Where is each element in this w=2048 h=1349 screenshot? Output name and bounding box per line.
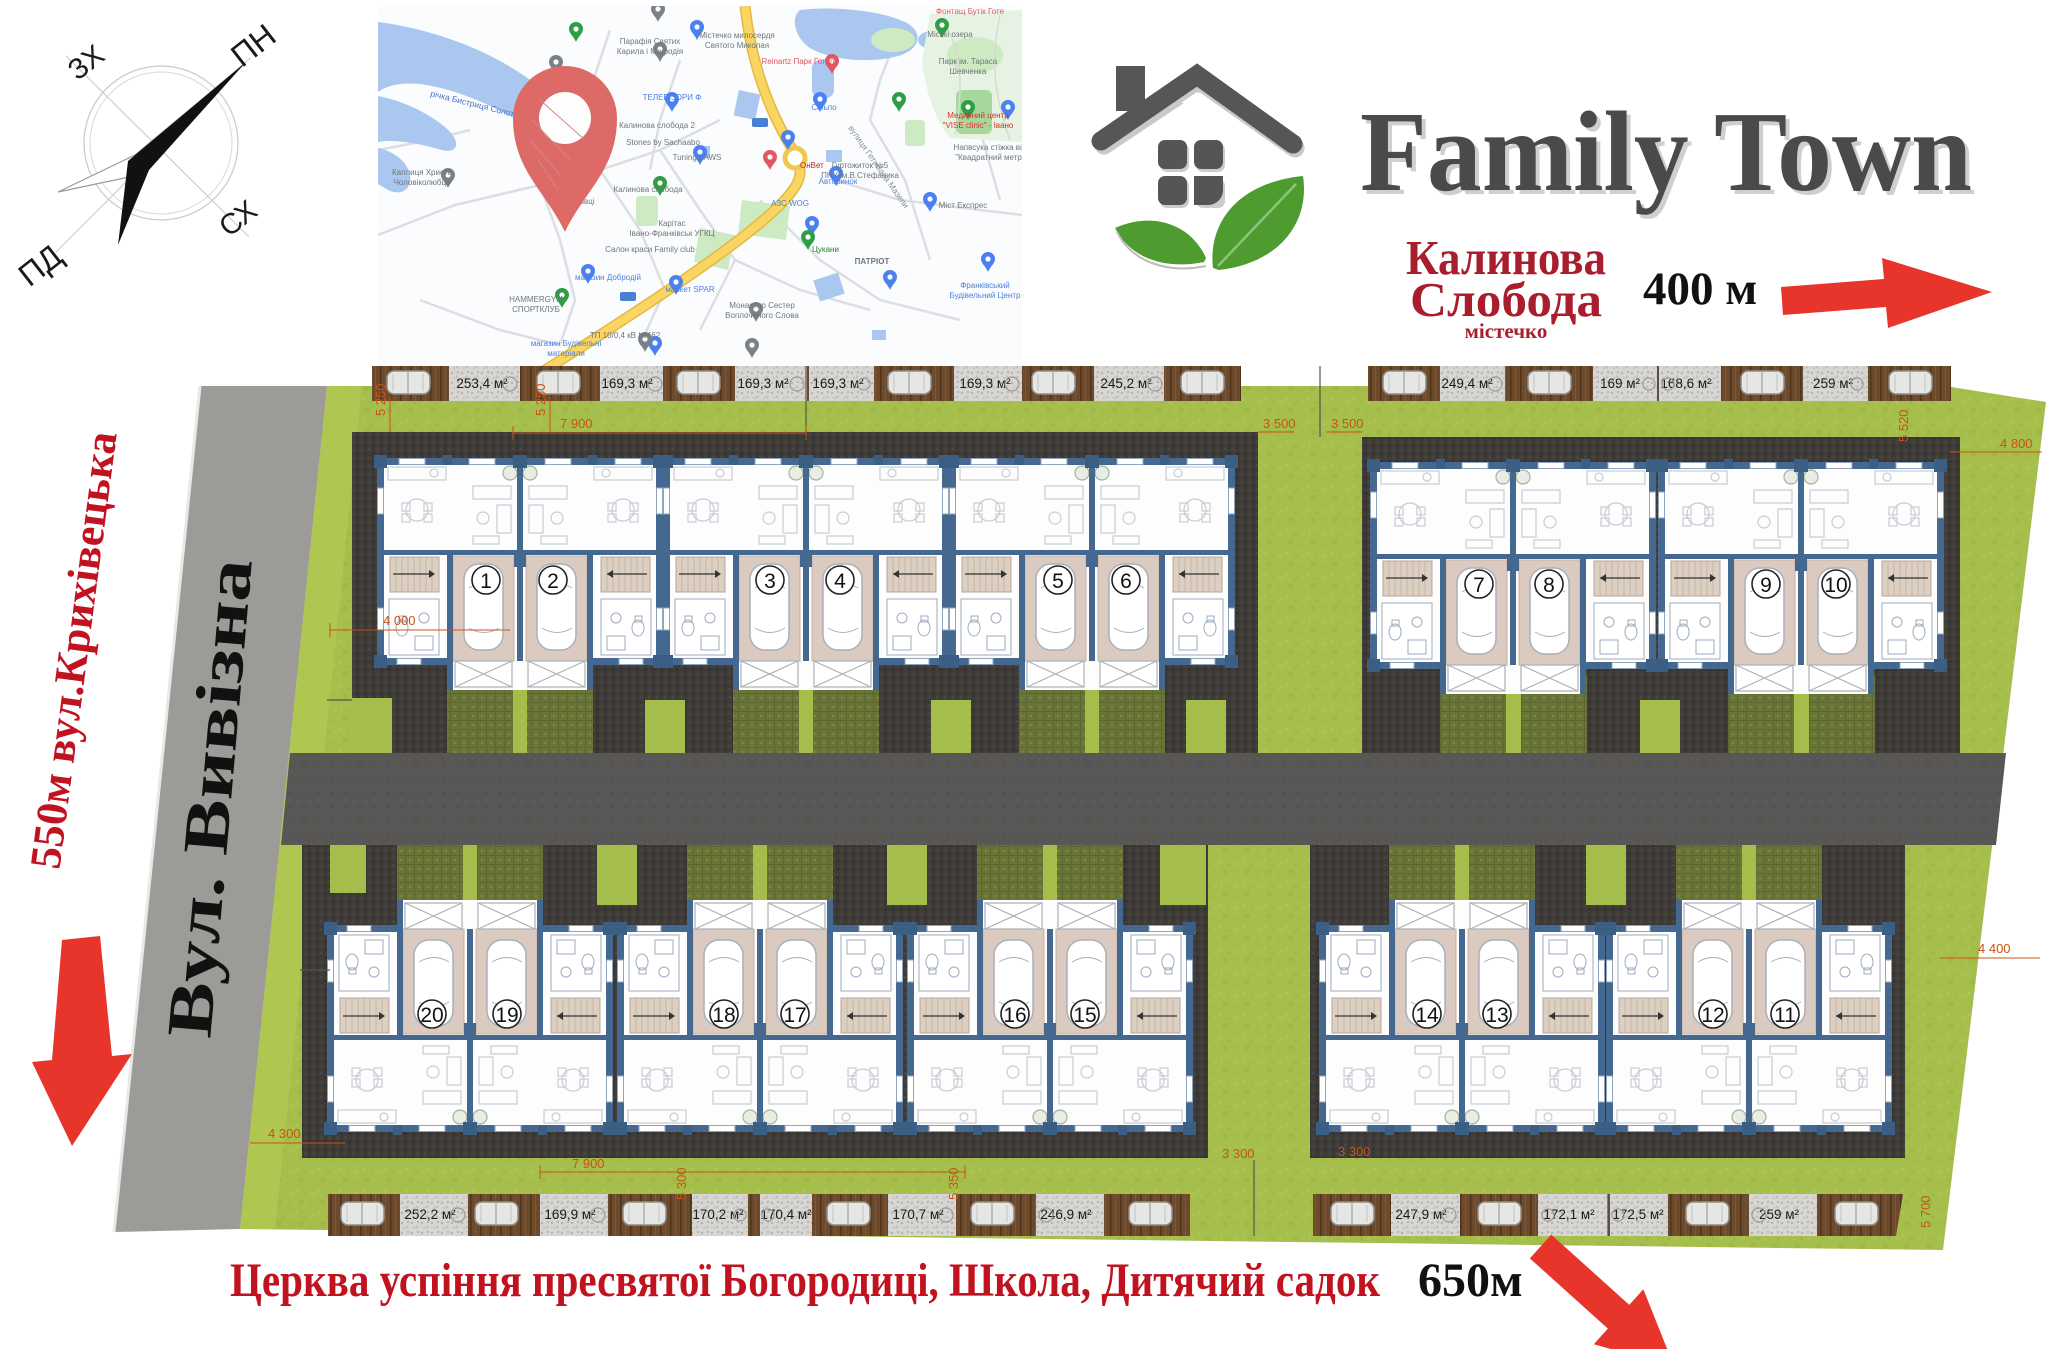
svg-text:магазин Будівельні: магазин Будівельні [531,339,602,348]
svg-text:3: 3 [764,570,776,593]
svg-text:1: 1 [480,570,492,593]
svg-text:17: 17 [783,1004,806,1027]
svg-text:4 000: 4 000 [383,613,416,628]
svg-text:Містечко милосердя: Містечко милосердя [699,31,775,40]
svg-text:4 300: 4 300 [268,1126,301,1141]
svg-text:4 400: 4 400 [1978,941,2011,956]
svg-text:Фонтащ Бутік Готе: Фонтащ Бутік Готе [936,7,1005,16]
svg-text:169,3 м²: 169,3 м² [959,376,1011,391]
svg-text:Калинова слобода 2: Калинова слобода 2 [619,121,695,130]
svg-text:ТЕЛЕВІЗОРИ Ф: ТЕЛЕВІЗОРИ Ф [643,93,702,102]
svg-text:Парк ім. Тараса: Парк ім. Тараса [939,57,998,66]
svg-text:13: 13 [1485,1004,1508,1027]
svg-text:містечко: містечко [1465,319,1548,343]
svg-text:15: 15 [1073,1004,1096,1027]
svg-text:Карітас: Карітас [658,219,685,228]
svg-text:Святого Миколая: Святого Миколая [705,41,769,50]
svg-text:3 500: 3 500 [1263,416,1296,431]
svg-text:259 м²: 259 м² [1813,376,1854,391]
svg-text:249,4 м²: 249,4 м² [1441,376,1493,391]
svg-text:5 300: 5 300 [674,1167,689,1200]
svg-text:маркет SPAR: маркет SPAR [665,285,714,294]
svg-text:АЗС WOG: АЗС WOG [771,199,809,208]
svg-text:11: 11 [1774,1004,1796,1027]
svg-text:Tuning LAWS: Tuning LAWS [673,153,722,162]
svg-text:Міст Експрес: Міст Експрес [939,201,987,210]
svg-text:9: 9 [1760,574,1772,597]
svg-text:СПОРТКЛУБ: СПОРТКЛУБ [512,305,560,314]
svg-text:3 500: 3 500 [1331,416,1364,431]
svg-text:Напвсука стіжка від: Напвсука стіжка від [954,143,1027,152]
svg-text:Карила і Мефодія: Карила і Мефодія [617,47,683,56]
svg-text:253,4 м²: 253,4 м² [456,376,508,391]
svg-text:4: 4 [834,570,846,593]
svg-text:16: 16 [1003,1004,1026,1027]
svg-text:10: 10 [1824,574,1847,597]
svg-text:Каплиця Христа: Каплиця Христа [392,168,453,177]
svg-text:6: 6 [1120,570,1132,593]
svg-text:400 м: 400 м [1643,263,1757,315]
svg-text:Family Town: Family Town [1360,88,1972,215]
svg-text:14: 14 [1415,1004,1439,1027]
svg-text:7: 7 [1473,574,1485,597]
svg-text:Reinartz Парк Готель: Reinartz Парк Готель [761,57,838,66]
svg-text:Воплоченого Слова: Воплоченого Слова [725,311,799,320]
svg-text:12: 12 [1701,1004,1724,1027]
svg-text:Чоловіколюбця: Чоловіколюбця [394,178,451,187]
svg-text:Цукани: Цукани [812,245,839,254]
svg-text:Франківський: Франківський [960,281,1009,290]
svg-text:ОнВет: ОнВет [800,161,824,170]
svg-text:3 300: 3 300 [1338,1144,1371,1159]
svg-text:259 м²: 259 м² [1759,1207,1800,1222]
svg-text:170,7 м²: 170,7 м² [892,1207,944,1222]
svg-text:245,2 м²: 245,2 м² [1100,376,1152,391]
svg-text:Авторинок: Авторинок [819,177,858,186]
svg-text:169,3 м²: 169,3 м² [601,376,653,391]
svg-text:19: 19 [495,1004,518,1027]
svg-text:Івано-Франківськ УГКЦ: Івано-Франківськ УГКЦ [629,229,714,238]
svg-text:5 250: 5 250 [533,383,548,416]
svg-text:Будівельний Центр: Будівельний Центр [950,291,1021,300]
svg-text:Медичний центр: Медичний центр [947,111,1009,120]
svg-text:247,9 м²: 247,9 м² [1395,1207,1447,1222]
svg-text:Парафія Святих: Парафія Святих [620,37,680,46]
svg-text:246,9 м²: 246,9 м² [1040,1207,1092,1222]
svg-text:HAMMERGYM: HAMMERGYM [509,295,563,304]
svg-text:Міські озера: Міські озера [927,30,973,39]
svg-text:Stones by Sachaabo: Stones by Sachaabo [626,138,700,147]
svg-text:169,9 м²: 169,9 м² [544,1207,596,1222]
svg-text:169 м²: 169 м² [1600,376,1641,391]
svg-text:18: 18 [712,1004,735,1027]
svg-text:Калинова слобода: Калинова слобода [613,185,683,194]
svg-text:5 700: 5 700 [1918,1195,1933,1228]
svg-text:Салон краси Family club: Салон краси Family club [605,245,695,254]
svg-text:5 250: 5 250 [373,383,388,416]
svg-text:169,3 м²: 169,3 м² [812,376,864,391]
svg-text:5 350: 5 350 [946,1167,961,1200]
svg-text:650м: 650м [1418,1254,1523,1307]
svg-text:5: 5 [1052,570,1064,593]
svg-text:магазин Добродій: магазин Добродій [575,273,641,282]
svg-text:Церква успіння пресвятої Богор: Церква успіння пресвятої Богородиці, Шко… [230,1254,1380,1307]
svg-text:ПАТРІОТ: ПАТРІОТ [855,257,890,266]
svg-text:5 520: 5 520 [1896,409,1911,442]
svg-text:Монастир Сестер: Монастир Сестер [729,301,795,310]
svg-text:252,2 м²: 252,2 м² [404,1207,456,1222]
svg-text:матеріали: матеріали [547,349,585,358]
svg-text:7 900: 7 900 [572,1156,605,1171]
svg-text:20: 20 [420,1004,443,1027]
svg-text:2: 2 [547,570,559,593]
svg-text:8: 8 [1543,574,1555,597]
svg-text:169,3 м²: 169,3 м² [737,376,789,391]
svg-text:"VISE clinic" - Івано: "VISE clinic" - Івано [943,121,1014,130]
svg-text:Сільпо: Сільпо [811,103,837,112]
svg-text:Шевченка: Шевченка [950,67,987,76]
svg-text:4 800: 4 800 [2000,436,2033,451]
svg-text:3 300: 3 300 [1222,1146,1255,1161]
svg-text:"Квадратний метр": "Квадратний метр" [955,153,1025,162]
svg-text:7 900: 7 900 [560,416,593,431]
